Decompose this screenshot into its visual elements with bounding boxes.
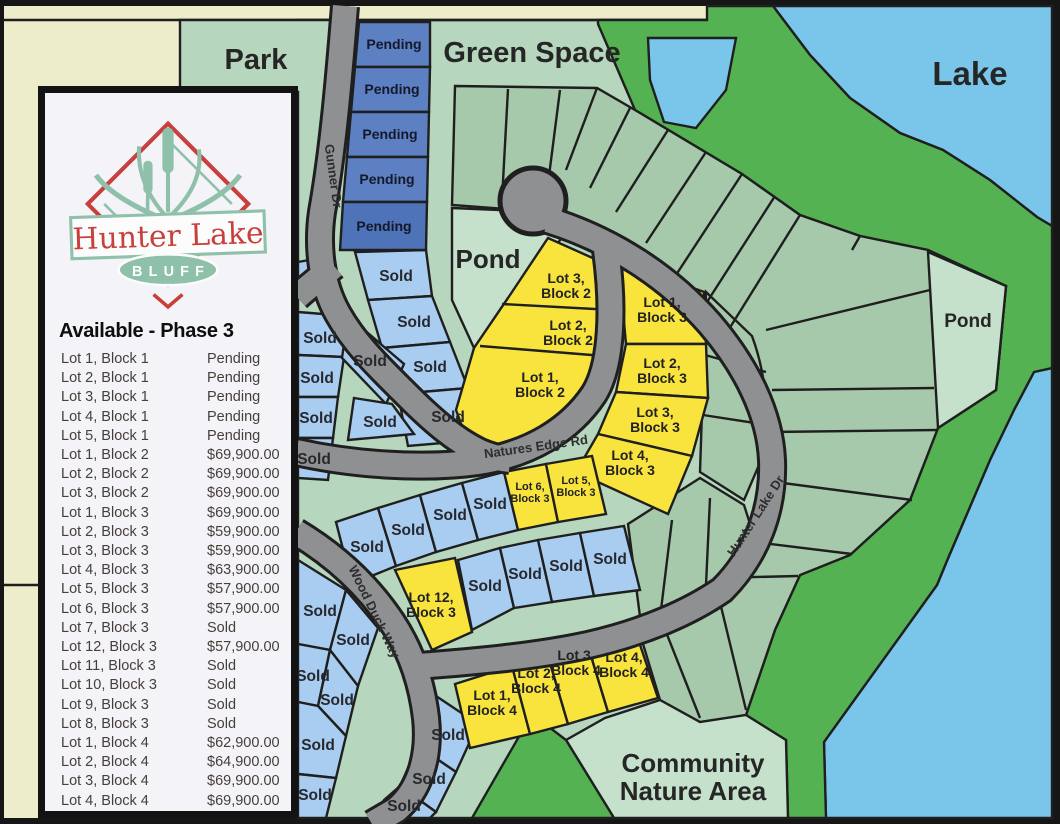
sold-label: Sold — [303, 603, 337, 620]
lot-label-b3l4: Lot 4,Block 3 — [605, 447, 655, 478]
listing-price: $69,900.00 — [207, 772, 283, 791]
sold-label: Sold — [508, 566, 542, 583]
listing-price: $64,900.00 — [207, 753, 283, 772]
pending-label: Pending — [364, 81, 419, 97]
listing-lot: Lot 10, Block 3 — [61, 676, 207, 695]
sold-label: Sold — [379, 268, 413, 285]
listing-row: Lot 4, Block 4$69,900.00 — [61, 792, 283, 811]
sold-label: Sold — [300, 370, 334, 387]
lot-label-b4l4: Lot 4,Block 4 — [599, 649, 649, 680]
sold-label: Sold — [397, 314, 431, 331]
sold-label: Sold — [431, 727, 465, 744]
listing-row: Lot 5, Block 3$57,900.00 — [61, 580, 283, 599]
listing-lot: Lot 6, Block 3 — [61, 600, 207, 619]
lake-label: Lake — [932, 55, 1007, 92]
listing-row: Lot 1, Block 4$62,900.00 — [61, 734, 283, 753]
listing-row: Lot 10, Block 3Sold — [61, 676, 283, 695]
listing-price: Pending — [207, 350, 283, 369]
listing-price: $69,900.00 — [207, 465, 283, 484]
lot-label-b3l12: Lot 12,Block 3 — [406, 589, 456, 620]
listing-row: Lot 11, Block 3Sold — [61, 657, 283, 676]
lot-label-b2l3: Lot 3,Block 2 — [541, 270, 591, 301]
listing-lot: Lot 9, Block 3 — [61, 696, 207, 715]
listing-lot: Lot 11, Block 3 — [61, 657, 207, 676]
listing-row: Lot 8, Block 3Sold — [61, 715, 283, 734]
listing-price: $57,900.00 — [207, 638, 283, 657]
listing-lot: Lot 2, Block 1 — [61, 369, 207, 388]
sold-label: Sold — [363, 414, 397, 431]
listing-price: Pending — [207, 388, 283, 407]
listing-lot: Lot 1, Block 3 — [61, 504, 207, 523]
listing-lot: Lot 12, Block 3 — [61, 638, 207, 657]
listing-row: Lot 9, Block 3Sold — [61, 696, 283, 715]
listing-price: $69,900.00 — [207, 504, 283, 523]
community-label-line1: Community — [622, 748, 766, 778]
listing-row: Lot 12, Block 3$57,900.00 — [61, 638, 283, 657]
listing-lot: Lot 2, Block 2 — [61, 465, 207, 484]
listing-row: Lot 5, Block 1Pending — [61, 427, 283, 446]
listing-lot: Lot 4, Block 4 — [61, 792, 207, 811]
listing-lot: Lot 5, Block 1 — [61, 427, 207, 446]
sold-label: Sold — [549, 558, 583, 575]
listing-price: $57,900.00 — [207, 600, 283, 619]
sold-label: Sold — [387, 798, 421, 815]
listing-row: Lot 4, Block 3$63,900.00 — [61, 561, 283, 580]
listing-price: Pending — [207, 369, 283, 388]
green-space-label: Green Space — [443, 37, 620, 69]
lot-label-b3l2: Lot 2,Block 3 — [637, 355, 687, 386]
listing-row: Lot 2, Block 4$64,900.00 — [61, 753, 283, 772]
sold-label: Sold — [473, 496, 507, 513]
cattail-head — [162, 128, 173, 173]
listing-price: Sold — [207, 676, 283, 695]
listing-price: $63,900.00 — [207, 561, 283, 580]
listing-row: Lot 3, Block 3$59,900.00 — [61, 542, 283, 561]
legend-panel: Hunter Lake BLUFF Available - Phase 3 Lo… — [38, 86, 298, 818]
listing-price: $59,900.00 — [207, 542, 283, 561]
pending-label: Pending — [362, 126, 417, 142]
listing-lot: Lot 1, Block 4 — [61, 734, 207, 753]
listing-lot: Lot 3, Block 2 — [61, 484, 207, 503]
plat-map-page: Park Green Space Lake Pond Pond Communit… — [0, 0, 1060, 824]
sold-label: Sold — [301, 737, 335, 754]
listing-lot: Lot 4, Block 3 — [61, 561, 207, 580]
listing-lot: Lot 1, Block 1 — [61, 350, 207, 369]
logo: Hunter Lake BLUFF — [65, 101, 271, 318]
sold-label: Sold — [303, 330, 337, 347]
lot-label-b3l6: Lot 6,Block 3 — [510, 481, 549, 505]
logo-chevron — [154, 294, 183, 306]
sold-label: Sold — [412, 771, 446, 788]
cattail-head — [143, 161, 152, 194]
listing-row: Lot 2, Block 3$59,900.00 — [61, 523, 283, 542]
logo-subtitle: BLUFF — [132, 264, 210, 280]
listing-price: Sold — [207, 715, 283, 734]
listing-row: Lot 3, Block 4$69,900.00 — [61, 772, 283, 791]
listing-lot: Lot 1, Block 2 — [61, 446, 207, 465]
sold-label: Sold — [298, 787, 332, 804]
sold-label: Sold — [336, 632, 370, 649]
listing-price: $69,900.00 — [207, 792, 283, 811]
lot-label-b3l3: Lot 3,Block 3 — [630, 404, 680, 435]
listing-price: $59,900.00 — [207, 523, 283, 542]
sold-label: Sold — [299, 410, 333, 427]
sold-label: Sold — [468, 578, 502, 595]
lot-listings: Lot 1, Block 1PendingLot 2, Block 1Pendi… — [61, 350, 283, 811]
panel-heading: Available - Phase 3 — [59, 320, 291, 343]
pond-central-label: Pond — [456, 244, 521, 274]
listing-price: Sold — [207, 657, 283, 676]
pending-label: Pending — [366, 36, 421, 52]
listing-price: Sold — [207, 696, 283, 715]
listing-lot: Lot 2, Block 3 — [61, 523, 207, 542]
listing-price: Pending — [207, 427, 283, 446]
park-label: Park — [225, 44, 289, 76]
listing-row: Lot 2, Block 1Pending — [61, 369, 283, 388]
lot-label-b2l2: Lot 2,Block 2 — [543, 317, 593, 348]
listing-lot: Lot 3, Block 4 — [61, 772, 207, 791]
sold-label: Sold — [297, 451, 331, 468]
sold-label: Sold — [431, 409, 465, 426]
listing-lot: Lot 7, Block 3 — [61, 619, 207, 638]
logo-title: Hunter Lake — [72, 216, 264, 258]
pond-east-label: Pond — [944, 311, 992, 332]
pending-label: Pending — [356, 218, 411, 234]
listing-row: Lot 1, Block 2$69,900.00 — [61, 446, 283, 465]
listing-price: $69,900.00 — [207, 484, 283, 503]
lot-label-b4l3: Lot 3,Block 4 — [551, 647, 601, 678]
sold-label: Sold — [413, 359, 447, 376]
listing-lot: Lot 5, Block 3 — [61, 580, 207, 599]
listing-lot: Lot 4, Block 1 — [61, 408, 207, 427]
listing-row: Lot 6, Block 3$57,900.00 — [61, 600, 283, 619]
listing-row: Lot 1, Block 3$69,900.00 — [61, 504, 283, 523]
listing-row: Lot 3, Block 1Pending — [61, 388, 283, 407]
lot-label-b2l1: Lot 1,Block 2 — [515, 369, 565, 400]
listing-row: Lot 3, Block 2$69,900.00 — [61, 484, 283, 503]
lot-label-b3l5: Lot 5,Block 3 — [556, 475, 595, 499]
sold-label: Sold — [296, 668, 330, 685]
listing-row: Lot 7, Block 3Sold — [61, 619, 283, 638]
community-label-line2: Nature Area — [620, 776, 767, 806]
listing-row: Lot 2, Block 2$69,900.00 — [61, 465, 283, 484]
listing-lot: Lot 3, Block 1 — [61, 388, 207, 407]
sold-label: Sold — [320, 692, 354, 709]
sold-label: Sold — [433, 507, 467, 524]
listing-row: Lot 4, Block 1Pending — [61, 408, 283, 427]
sold-label: Sold — [350, 539, 384, 556]
lot-label-b4l1: Lot 1,Block 4 — [467, 687, 517, 718]
listing-price: $62,900.00 — [207, 734, 283, 753]
listing-price: Pending — [207, 408, 283, 427]
listing-row: Lot 1, Block 1Pending — [61, 350, 283, 369]
listing-lot: Lot 8, Block 3 — [61, 715, 207, 734]
logo-graphic: Hunter Lake BLUFF — [65, 101, 271, 313]
listing-price: Sold — [207, 619, 283, 638]
pending-label: Pending — [359, 171, 414, 187]
listing-price: $57,900.00 — [207, 580, 283, 599]
sold-label: Sold — [391, 522, 425, 539]
logo-banner: Hunter Lake — [71, 211, 266, 259]
listing-lot: Lot 3, Block 3 — [61, 542, 207, 561]
listing-lot: Lot 2, Block 4 — [61, 753, 207, 772]
lot-label-b3l1: Lot 1,Block 3 — [637, 294, 687, 325]
sold-label: Sold — [353, 353, 387, 370]
sold-label: Sold — [593, 551, 627, 568]
listing-price: $69,900.00 — [207, 446, 283, 465]
